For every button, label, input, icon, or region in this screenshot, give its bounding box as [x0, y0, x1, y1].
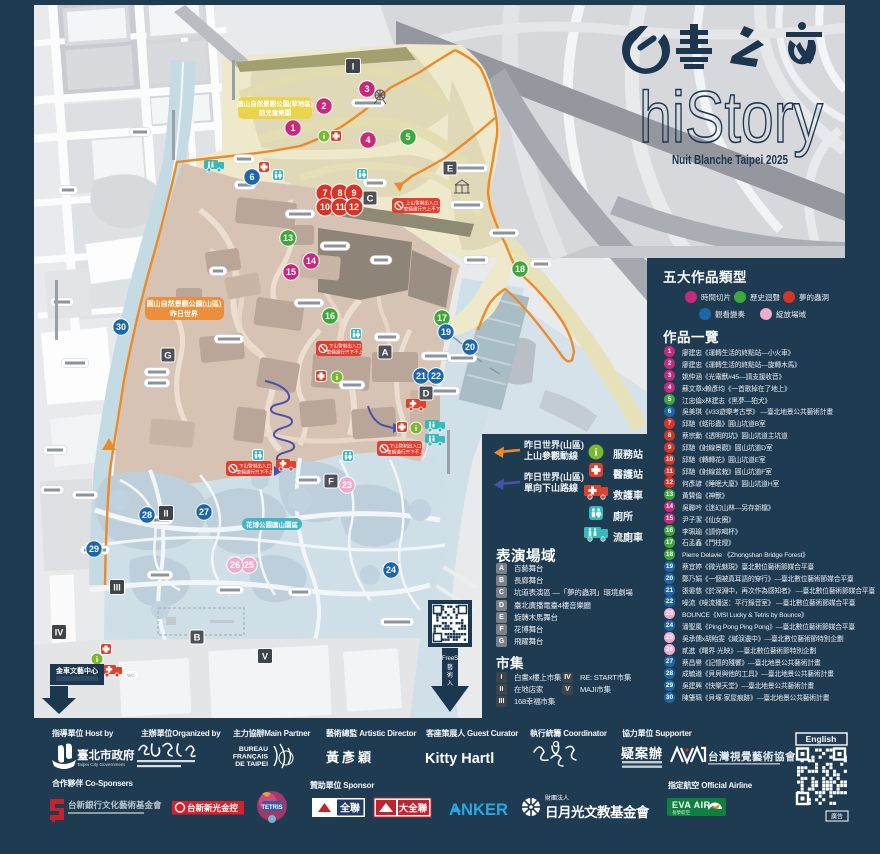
svg-text:15: 15 [286, 267, 296, 277]
svg-text:上山管制出入口: 上山管制出入口 [406, 200, 439, 207]
svg-text:金車文藝中心: 金車文藝中心 [55, 666, 98, 675]
svg-text:27: 27 [199, 507, 209, 517]
svg-text:20: 20 [465, 342, 475, 352]
svg-text:下山管制出入口: 下山管制出入口 [239, 463, 272, 470]
svg-text:F: F [328, 477, 334, 488]
svg-text:III: III [113, 583, 121, 593]
svg-text:Taipei City Government: Taipei City Government [77, 762, 125, 767]
svg-text:24: 24 [386, 565, 396, 575]
svg-text:臺北市政府: 臺北市政府 [77, 748, 135, 762]
svg-text:Nuit Blanche Taipei 2025: Nuit Blanche Taipei 2025 [672, 152, 788, 167]
svg-text:BUREAU: BUREAU [239, 746, 268, 753]
svg-text:車輛通行只下不上: 車輛通行只下不上 [387, 449, 424, 456]
svg-text:7: 7 [322, 188, 327, 198]
svg-text:下山管制出入口: 下山管制出入口 [389, 443, 422, 450]
svg-text:TETRIS: TETRIS [261, 805, 282, 811]
svg-text:26: 26 [230, 560, 240, 570]
svg-text:花博公園圓山園區: 花博公園圓山園區 [246, 520, 299, 529]
svg-text:車輛通行只下不上: 車輛通行只下不上 [237, 469, 274, 476]
svg-text:圓山自然景觀公園(山區): 圓山自然景觀公園(山區) [147, 299, 222, 308]
svg-text:C: C [367, 194, 374, 205]
svg-text:18: 18 [515, 264, 525, 274]
svg-text:黃彥穎: 黃彥穎 [325, 750, 374, 765]
svg-text:Kitty Hartl: Kitty Hartl [425, 751, 494, 767]
svg-text:16: 16 [325, 311, 335, 321]
svg-text:30: 30 [116, 322, 126, 332]
svg-text:IV: IV [55, 628, 64, 638]
svg-text:E: E [447, 164, 453, 175]
svg-text:財團法人: 財團法人 [545, 794, 569, 802]
svg-text:21: 21 [416, 371, 426, 381]
svg-text:車輛通行只下不上: 車輛通行只下不上 [327, 349, 364, 356]
svg-text:29: 29 [89, 544, 99, 554]
svg-text:台灣視覺藝術協會: 台灣視覺藝術協會 [708, 750, 796, 763]
svg-text:2: 2 [321, 101, 326, 111]
svg-text:II: II [163, 509, 168, 519]
svg-text:25: 25 [244, 560, 254, 570]
svg-text:23: 23 [342, 480, 352, 490]
svg-text:疑案辦: 疑案辦 [621, 746, 663, 761]
svg-text:下山管制出入口: 下山管制出入口 [329, 343, 362, 350]
svg-text:WC: WC [127, 673, 135, 678]
svg-text:D: D [423, 389, 430, 400]
svg-text:TAIPEI: TAIPEI [56, 764, 70, 769]
svg-text:EVA AIR: EVA AIR [672, 800, 711, 810]
svg-text:圓山自然景觀公園(草地區): 圓山自然景觀公園(草地區) [237, 99, 313, 108]
svg-text:大全聯: 大全聯 [399, 803, 428, 815]
svg-text:廣告: 廣告 [831, 813, 843, 821]
svg-text:長榮航空: 長榮航空 [672, 809, 690, 816]
svg-text:13: 13 [283, 233, 293, 243]
svg-text:19: 19 [441, 327, 451, 337]
svg-text:English: English [806, 734, 837, 744]
svg-text:台新新光金控: 台新新光金控 [187, 803, 239, 813]
svg-text:入: 入 [447, 680, 453, 687]
svg-text:V: V [262, 652, 268, 662]
svg-text:DE TAIPEI: DE TAIPEI [235, 761, 268, 768]
svg-text:8: 8 [337, 188, 342, 198]
svg-text:日月光文教基金會: 日月光文教基金會 [545, 804, 650, 820]
svg-text:昨日世界: 昨日世界 [170, 309, 199, 318]
svg-text:車輛通行只上不下: 車輛通行只上不下 [404, 206, 441, 213]
svg-text:4: 4 [365, 135, 370, 145]
svg-text:22: 22 [431, 371, 441, 381]
svg-text:10: 10 [320, 202, 330, 212]
svg-text:FRANÇAIS: FRANÇAIS [233, 754, 269, 761]
svg-text:28: 28 [142, 510, 152, 520]
svg-text:前兒童樂園: 前兒童樂園 [259, 108, 292, 117]
svg-text:17: 17 [437, 313, 447, 323]
svg-text:G: G [164, 351, 171, 362]
svg-text:12: 12 [349, 202, 359, 212]
svg-text:11: 11 [335, 202, 345, 212]
svg-text:9: 9 [351, 188, 356, 198]
svg-text:I: I [352, 62, 355, 72]
svg-text:i: i [594, 447, 597, 459]
svg-text:14: 14 [306, 256, 316, 266]
svg-text:術: 術 [447, 671, 453, 679]
svg-text:A: A [382, 348, 389, 359]
svg-text:3: 3 [364, 84, 369, 94]
svg-text:6: 6 [249, 172, 254, 182]
svg-text:5: 5 [405, 132, 410, 142]
svg-text:全聯: 全聯 [339, 802, 360, 815]
svg-text:1: 1 [290, 123, 295, 133]
svg-text:台新銀行文化藝術基金會: 台新銀行文化藝術基金會 [68, 800, 162, 810]
svg-text:B: B [194, 633, 201, 644]
svg-text:藝: 藝 [447, 663, 453, 671]
svg-text:FreeS: FreeS [442, 656, 458, 662]
svg-text:hiStory: hiStory [639, 78, 823, 158]
